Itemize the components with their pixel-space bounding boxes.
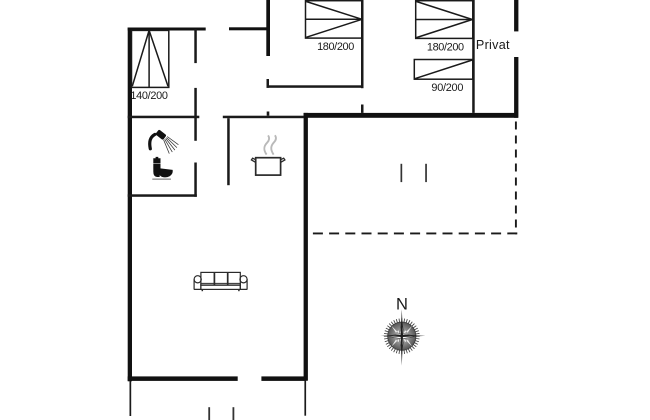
svg-text:140/200: 140/200 xyxy=(130,90,168,102)
svg-text:N: N xyxy=(396,295,408,313)
svg-text:180/200: 180/200 xyxy=(317,41,354,53)
svg-text:90/200: 90/200 xyxy=(431,82,463,94)
svg-text:180/200: 180/200 xyxy=(427,42,464,54)
svg-text:Privat: Privat xyxy=(476,38,510,52)
